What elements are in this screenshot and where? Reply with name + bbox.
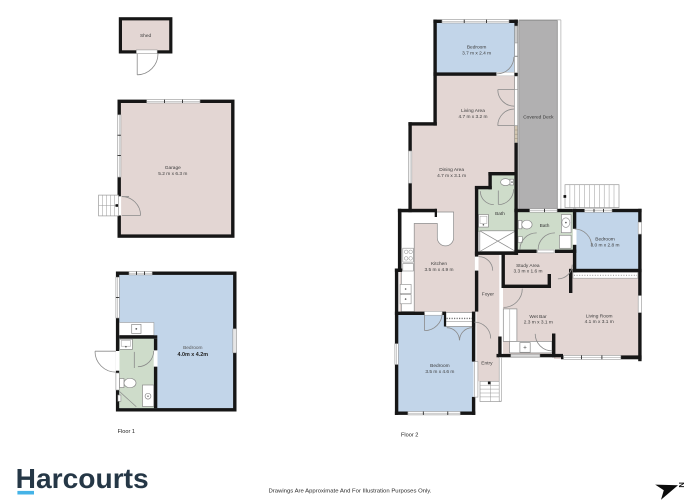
svg-text:Bedroom: Bedroom: [467, 44, 486, 50]
svg-text:Living Area: Living Area: [461, 108, 485, 114]
svg-text:Kitchen: Kitchen: [431, 261, 447, 267]
svg-text:Shed: Shed: [140, 33, 152, 39]
svg-text:Entry: Entry: [481, 361, 493, 367]
svg-text:4.7 m x 3.2 m: 4.7 m x 3.2 m: [458, 114, 487, 120]
svg-text:Drawings Are Approximate And F: Drawings Are Approximate And For Illustr…: [269, 489, 432, 495]
svg-text:Bedroom: Bedroom: [183, 345, 202, 351]
svg-text:3.0 m x 2.8 m: 3.0 m x 2.8 m: [590, 242, 619, 248]
svg-text:Wet Bar: Wet Bar: [529, 314, 547, 320]
svg-text:4.1 m x 3.1 m: 4.1 m x 3.1 m: [585, 319, 614, 325]
svg-text:4.0m x 4.2m: 4.0m x 4.2m: [178, 352, 209, 358]
svg-text:Study Area: Study Area: [516, 263, 540, 269]
svg-text:Bedroom: Bedroom: [430, 363, 449, 369]
svg-text:Bedroom: Bedroom: [595, 236, 614, 242]
svg-text:Floor 2: Floor 2: [401, 433, 418, 439]
svg-text:2.3 m x 3.1 m: 2.3 m x 3.1 m: [524, 319, 553, 325]
svg-text:Harcourts: Harcourts: [16, 463, 149, 494]
svg-text:3.5 m x 4.6 m: 3.5 m x 4.6 m: [425, 369, 454, 375]
svg-text:Bath: Bath: [495, 211, 505, 217]
svg-text:Covered Deck: Covered Deck: [523, 115, 554, 121]
svg-text:Floor 1: Floor 1: [118, 429, 135, 435]
svg-text:3.5 m x 4.9 m: 3.5 m x 4.9 m: [424, 267, 453, 273]
svg-text:3.7 m x 2.4 m: 3.7 m x 2.4 m: [462, 51, 491, 57]
svg-text:N: N: [677, 482, 686, 487]
svg-text:Living Room: Living Room: [586, 313, 613, 319]
svg-text:Foyer: Foyer: [482, 292, 495, 298]
svg-text:5.2 m x 6.3 m: 5.2 m x 6.3 m: [158, 171, 187, 177]
svg-text:3.3 m x 1.6 m: 3.3 m x 1.6 m: [513, 269, 542, 275]
svg-text:Bath: Bath: [540, 223, 550, 229]
svg-text:4.7 m x 3.1 m: 4.7 m x 3.1 m: [437, 173, 466, 179]
svg-text:Dining Area: Dining Area: [439, 167, 464, 173]
svg-text:Garage: Garage: [165, 165, 181, 171]
